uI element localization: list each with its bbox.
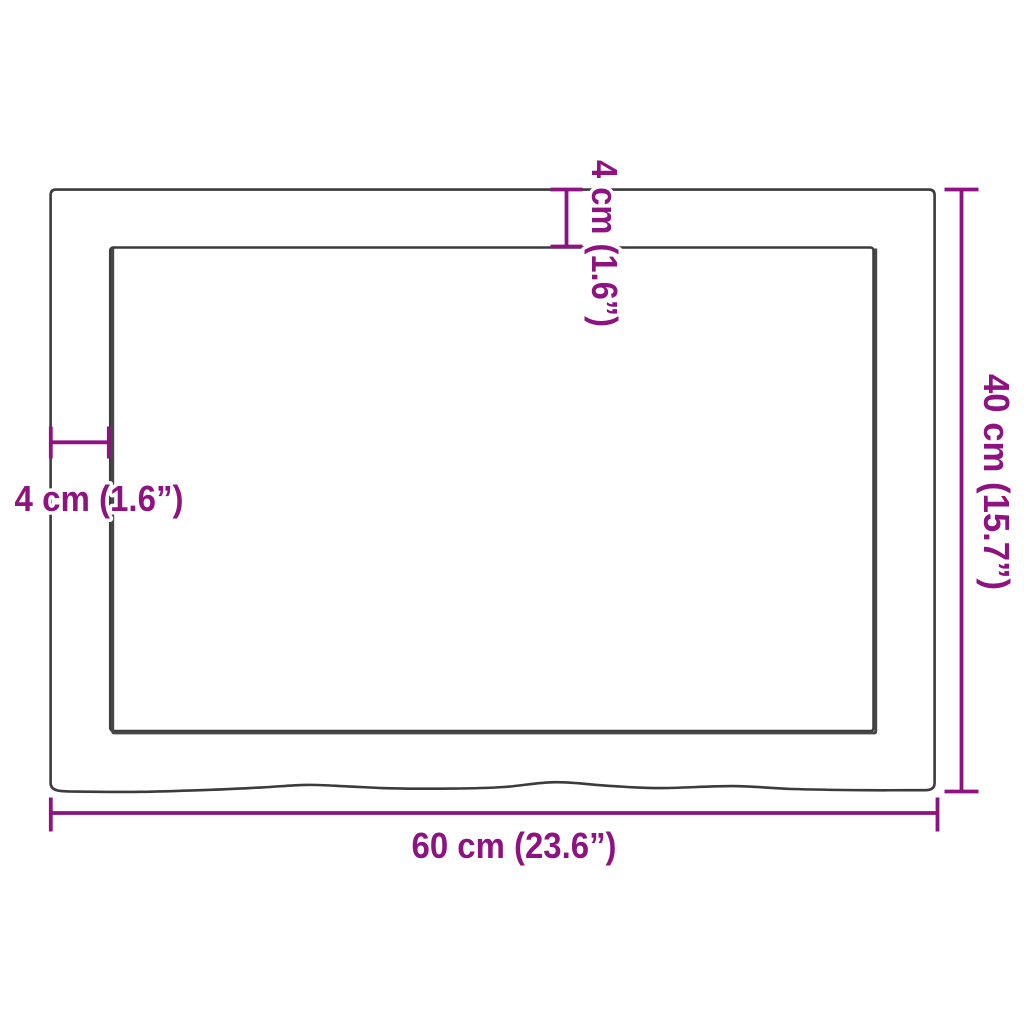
svg-text:4 cm (1.6”): 4 cm (1.6”): [584, 160, 625, 327]
svg-text:40 cm (15.7”): 40 cm (15.7”): [976, 374, 1017, 590]
svg-text:4 cm (1.6”): 4 cm (1.6”): [15, 478, 184, 519]
svg-text:60 cm (23.6”): 60 cm (23.6”): [412, 825, 617, 866]
